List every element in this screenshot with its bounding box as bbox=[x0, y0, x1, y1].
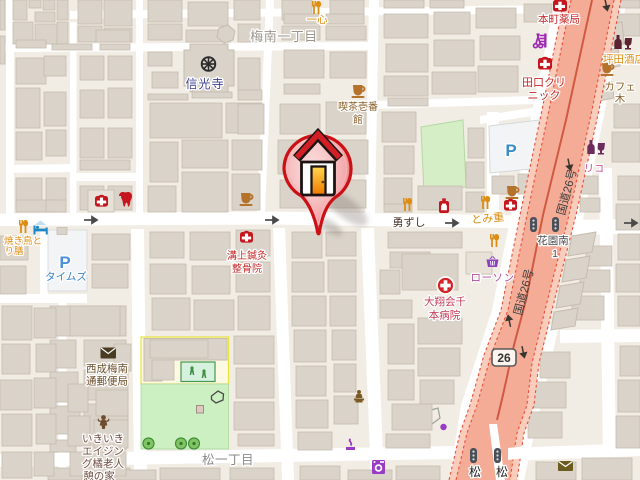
svg-text:カフェ: カフェ bbox=[604, 81, 636, 93]
svg-text:憩の家: 憩の家 bbox=[83, 470, 115, 480]
svg-text:溝上鍼灸: 溝上鍼灸 bbox=[227, 249, 267, 262]
svg-text:松: 松 bbox=[496, 465, 508, 479]
svg-text:松: 松 bbox=[469, 465, 481, 479]
svg-text:梅南一丁目: 梅南一丁目 bbox=[250, 29, 318, 44]
svg-text:一心: 一心 bbox=[307, 14, 328, 26]
svg-text:坪田酒店: 坪田酒店 bbox=[603, 53, 640, 66]
svg-text:P: P bbox=[59, 253, 70, 272]
svg-text:26: 26 bbox=[497, 351, 511, 365]
svg-text:通郵便局: 通郵便局 bbox=[86, 375, 128, 388]
svg-text:ローソン: ローソン bbox=[471, 272, 515, 284]
svg-text:ニック: ニック bbox=[528, 89, 561, 102]
svg-text:木: 木 bbox=[615, 93, 626, 105]
svg-text:喫茶壱番: 喫茶壱番 bbox=[338, 100, 378, 113]
svg-text:いきいき: いきいき bbox=[82, 433, 124, 445]
svg-text:グ橘老人: グ橘老人 bbox=[82, 457, 124, 470]
svg-text:大翔会千: 大翔会千 bbox=[424, 295, 466, 308]
svg-text:整骨院: 整骨院 bbox=[232, 262, 262, 275]
svg-text:花園南: 花園南 bbox=[537, 234, 569, 247]
svg-text:り膳: り膳 bbox=[4, 245, 24, 257]
svg-text:1: 1 bbox=[552, 248, 558, 260]
svg-text:信光寺: 信光寺 bbox=[185, 77, 224, 91]
svg-text:西成梅南: 西成梅南 bbox=[86, 362, 128, 375]
svg-text:田口クリ: 田口クリ bbox=[522, 76, 566, 89]
svg-text:エイジン: エイジン bbox=[82, 446, 124, 458]
svg-text:本病院: 本病院 bbox=[429, 309, 461, 322]
svg-text:本町薬局: 本町薬局 bbox=[538, 13, 580, 26]
svg-text:松一丁目: 松一丁目 bbox=[202, 453, 254, 467]
svg-text:P: P bbox=[505, 141, 516, 160]
svg-text:タイムズ: タイムズ bbox=[45, 270, 87, 283]
svg-text:館: 館 bbox=[353, 113, 363, 126]
svg-text:リコ: リコ bbox=[584, 164, 604, 175]
svg-text:勇ずし: 勇ずし bbox=[393, 216, 426, 229]
